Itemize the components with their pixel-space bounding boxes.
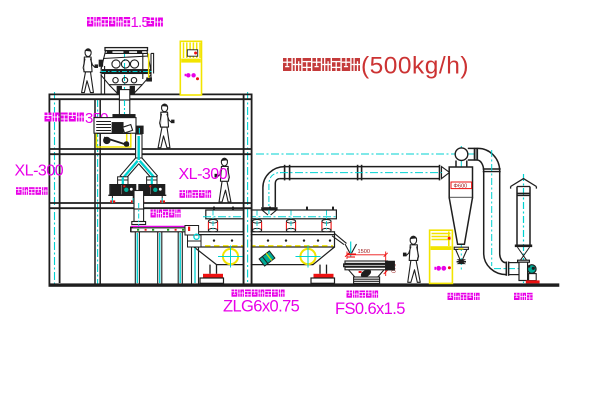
svg-text:ZLG6x0.75: ZLG6x0.75 — [223, 298, 300, 316]
svg-text:1500: 1500 — [358, 249, 370, 255]
svg-text:FS0.6x1.5: FS0.6x1.5 — [335, 300, 405, 318]
svg-text:XL-300: XL-300 — [179, 166, 228, 183]
svg-text:(500kg/h): (500kg/h) — [361, 53, 469, 80]
svg-text:XL-300: XL-300 — [15, 163, 64, 180]
svg-text:Φ600: Φ600 — [454, 183, 468, 189]
